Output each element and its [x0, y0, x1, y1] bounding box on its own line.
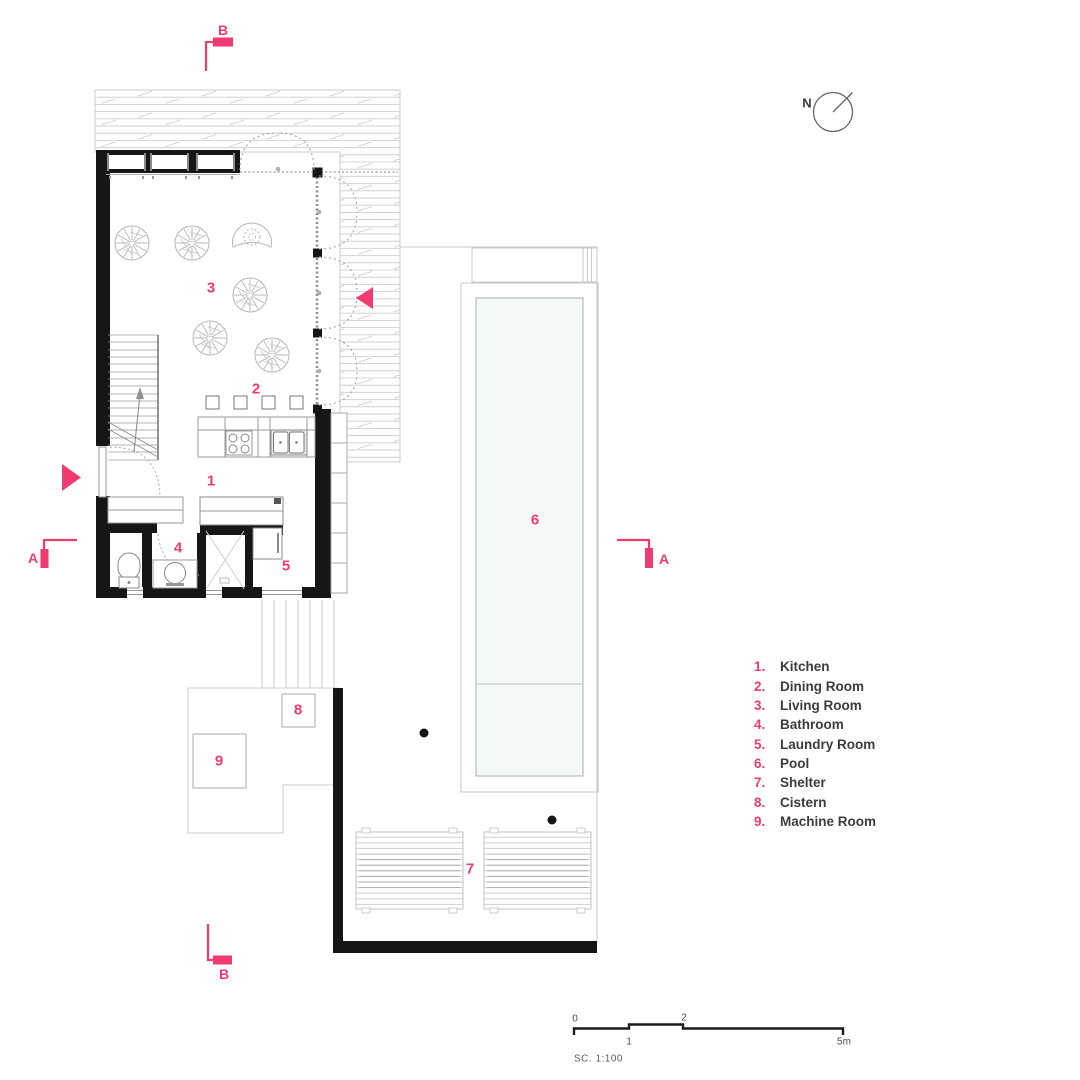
room-label-cistern: 8: [294, 702, 302, 719]
wicker-chair: [115, 226, 149, 260]
dining-stools: [206, 396, 303, 409]
exterior-steps: [262, 600, 334, 688]
legend-item: 6.Pool: [754, 754, 876, 773]
scale-tick-2: 2: [681, 1013, 687, 1024]
room-label-machine-room: 9: [215, 753, 223, 770]
floor-plan-drawing: [0, 0, 1080, 1080]
section-label-b-bottom: B: [219, 966, 229, 982]
wicker-chair: [255, 338, 289, 372]
lounger: [484, 828, 591, 913]
scale-tick-5m: 5m: [837, 1037, 851, 1048]
legend-item: 1.Kitchen: [754, 657, 876, 676]
service-yard: [188, 600, 338, 833]
wicker-chair: [233, 278, 267, 312]
shower: [206, 531, 244, 589]
legend-item: 7.Shelter: [754, 773, 876, 792]
room-label-shelter: 7: [466, 861, 474, 878]
legend-item: 8.Cistern: [754, 792, 876, 811]
room-label-kitchen: 1: [207, 473, 215, 490]
legend-item: 4.Bathroom: [754, 715, 876, 734]
room-label-bathroom: 4: [174, 540, 182, 557]
west-entrance-arrow: [62, 464, 81, 491]
room-label-laundry: 5: [282, 558, 290, 575]
legend: 1.Kitchen 2.Dining Room 3.Living Room 4.…: [754, 657, 876, 831]
terrace-wall-west: [333, 688, 343, 953]
north-label: N: [802, 96, 811, 111]
section-a-left: [41, 540, 78, 568]
stairs: [108, 335, 158, 460]
entry-door: [99, 447, 160, 499]
kitchen-fixtures: [108, 417, 315, 525]
toilet: [118, 553, 140, 579]
north-windows: [106, 153, 240, 179]
legend-item: 2.Dining Room: [754, 676, 876, 695]
legend-item: 5.Laundry Room: [754, 734, 876, 753]
east-closet: [331, 413, 347, 593]
floor-plan-canvas: 1 2 3 4 5 6 7 8 9 B B A A N 1.Kitchen 2.…: [0, 0, 1080, 1080]
scale-bar: [574, 1025, 843, 1036]
section-a-right: [617, 540, 653, 568]
legend-item: 9.Machine Room: [754, 812, 876, 831]
room-label-living: 3: [207, 280, 215, 297]
room-label-dining: 2: [252, 381, 260, 398]
section-b-top: [206, 38, 233, 72]
lounger: [356, 828, 463, 913]
section-label-a-left: A: [28, 550, 38, 566]
pool: [476, 298, 583, 776]
armchair: [233, 223, 272, 247]
wicker-chair: [175, 226, 209, 260]
north-arrow: [814, 93, 853, 132]
scale-tick-0: 0: [572, 1014, 578, 1025]
section-b-bottom: [208, 924, 232, 965]
terrace-wall-south: [333, 941, 597, 953]
legend-item: 3.Living Room: [754, 696, 876, 715]
wicker-chair: [193, 321, 227, 355]
scale-ratio-label: SC. 1:100: [574, 1054, 623, 1065]
scale-tick-1: 1: [626, 1037, 632, 1048]
section-label-b-top: B: [218, 22, 228, 38]
section-label-a-right: A: [659, 551, 669, 567]
room-label-pool: 6: [531, 512, 539, 529]
